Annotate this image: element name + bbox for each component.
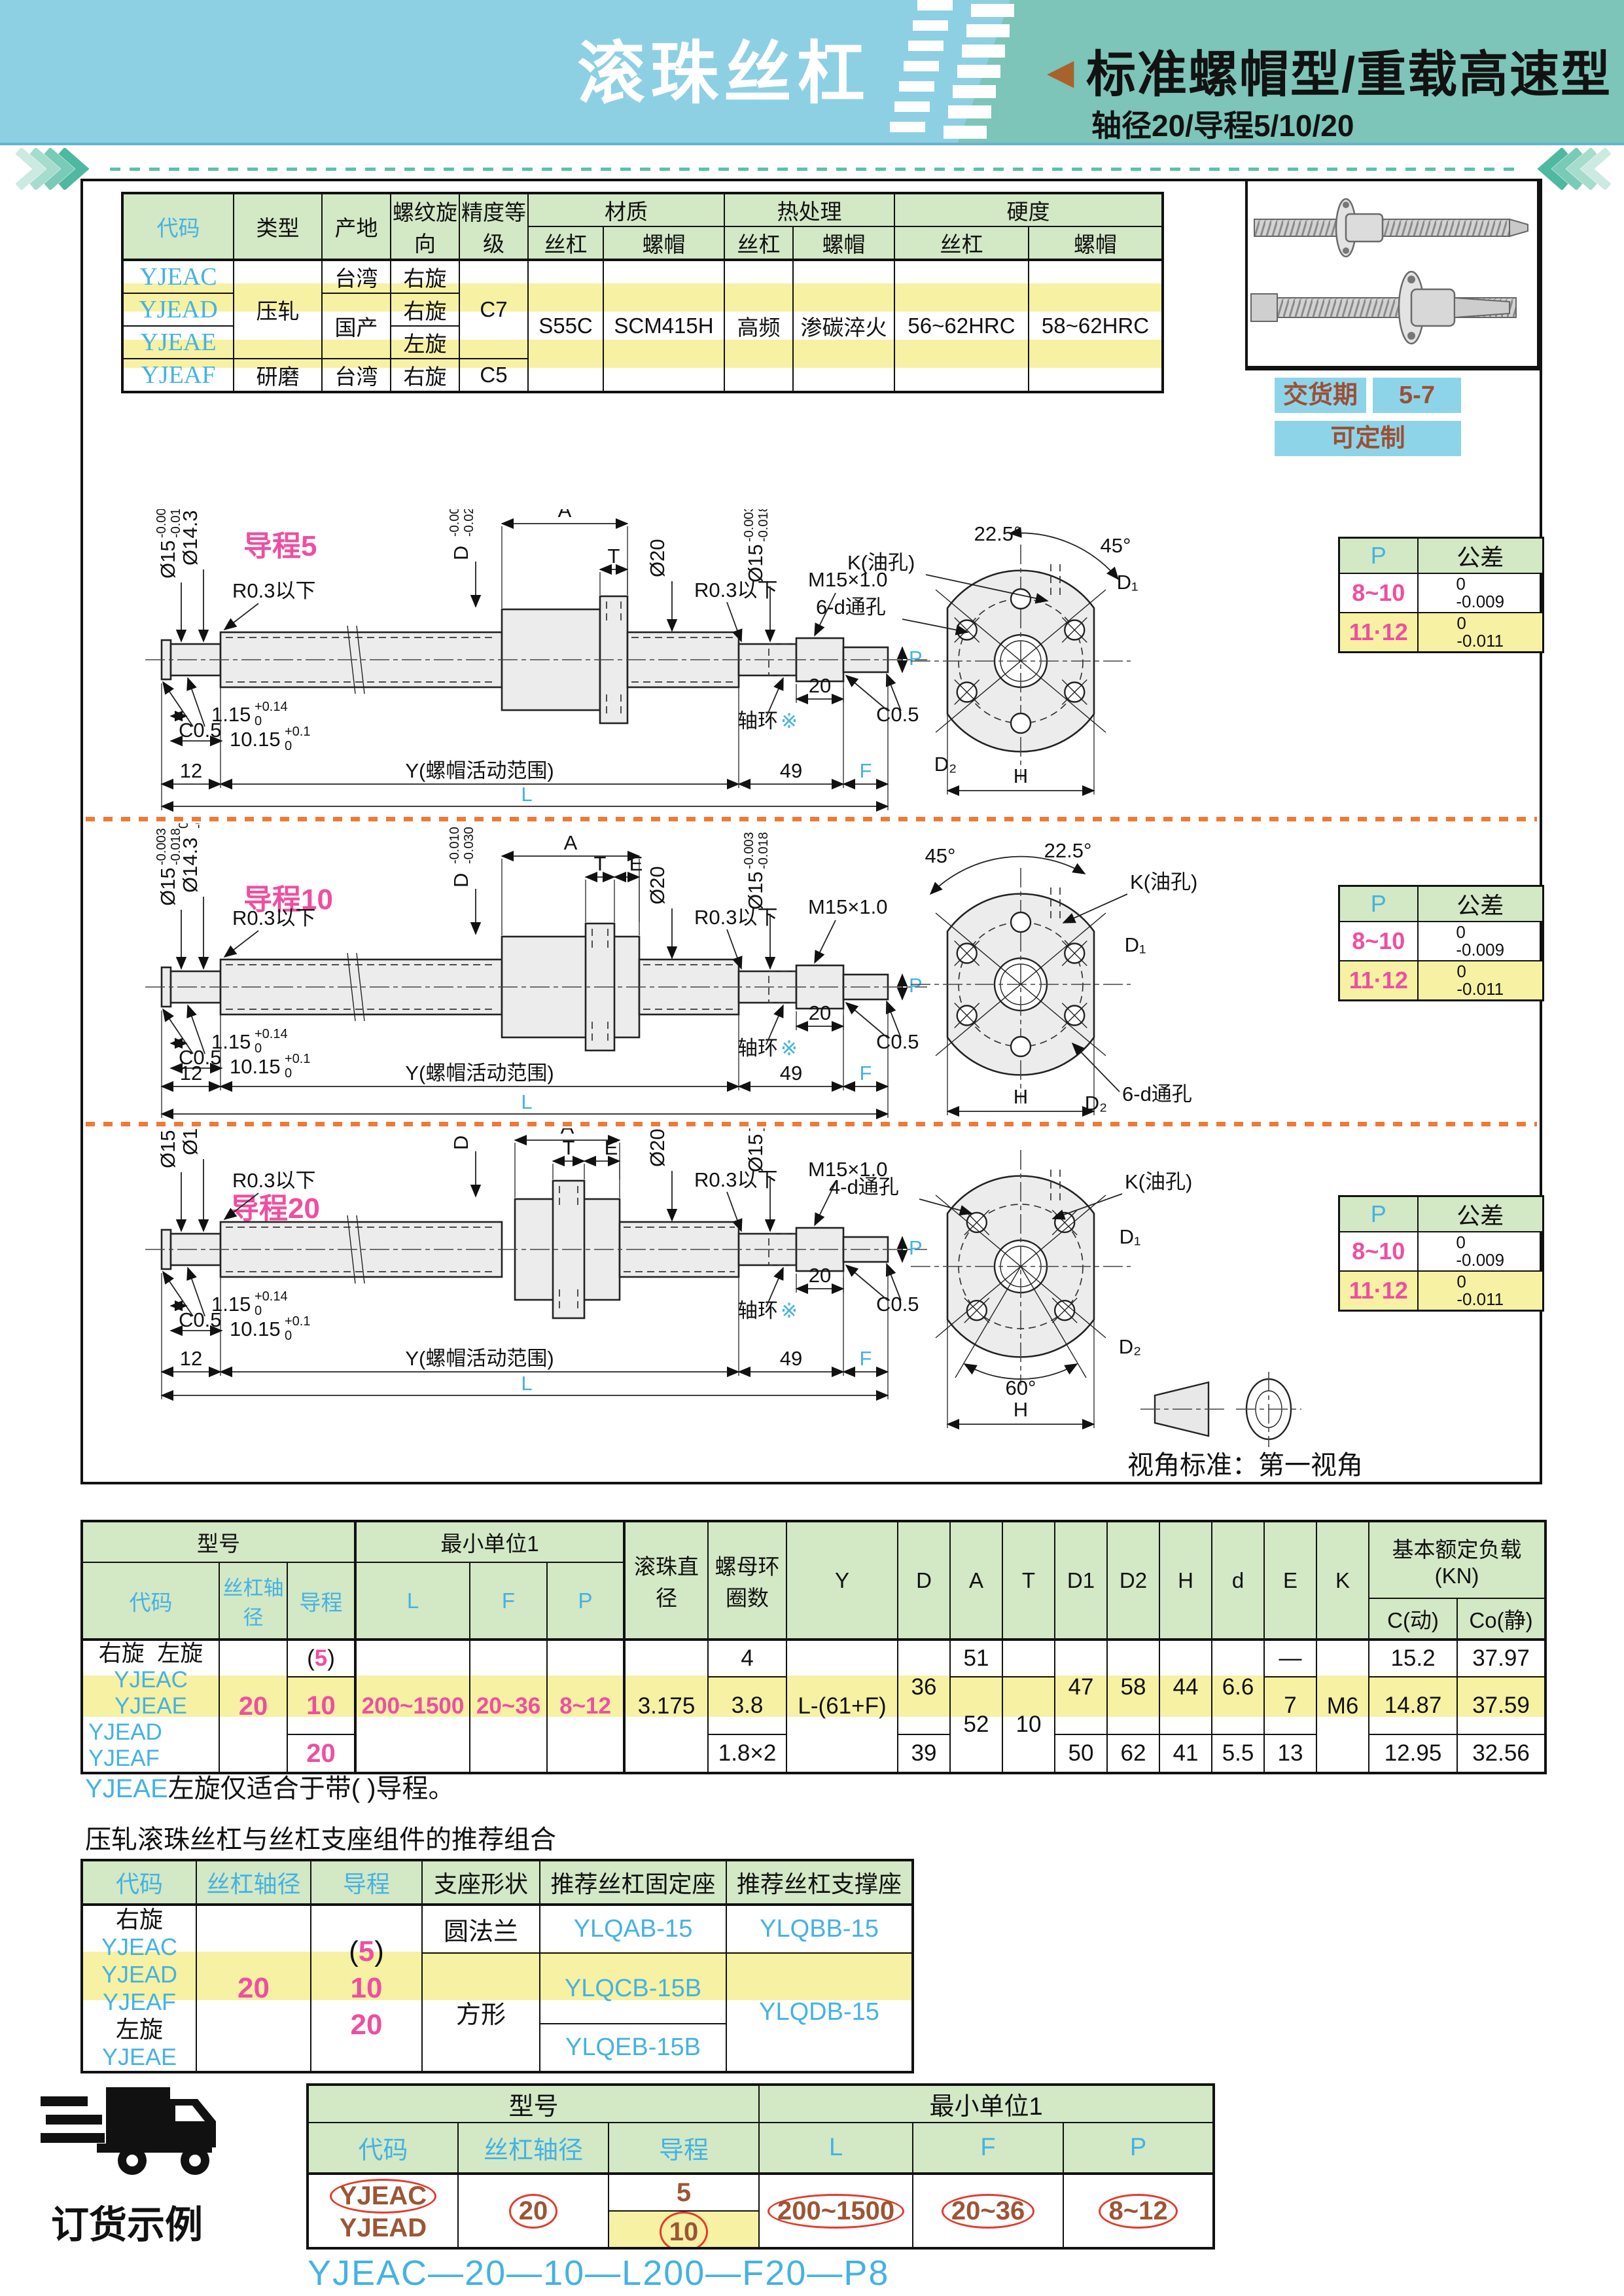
col-e: E: [1264, 1521, 1316, 1640]
len1015-lo-label: 0: [285, 739, 292, 753]
d1-label: D₁: [1120, 1225, 1141, 1248]
col-lead: 导程: [287, 1562, 355, 1640]
dia143-label: Ø14.3: [179, 838, 202, 893]
section-subtitle: 轴径20/导程5/10/20: [1091, 102, 1354, 145]
d2-3: 62: [1107, 1734, 1159, 1773]
len115-lo-label: 0: [255, 714, 262, 728]
leads-cell: (5) 10 20: [311, 1905, 422, 2072]
c-3: 12.95: [1369, 1734, 1457, 1773]
dia15-hi-label: -0.003: [742, 509, 756, 542]
dir-left: 左旋: [391, 326, 459, 359]
col-material: 材质: [528, 193, 724, 226]
order-codes: YJEAC YJEAD: [308, 2174, 458, 2248]
col-t: T: [1002, 1521, 1055, 1640]
c-2: 14.87: [1369, 1677, 1457, 1734]
col-heat: 热处理: [724, 193, 894, 226]
dim-h-label: H: [1014, 1398, 1028, 1421]
y-range-label: Y(螺帽活动范围): [405, 1347, 554, 1370]
len115-lo-label: 0: [255, 1041, 262, 1056]
r03-label: R0.3以下: [232, 579, 315, 602]
holes4-label: 4-d通孔: [829, 1175, 899, 1198]
dir-right: 右旋: [391, 359, 459, 392]
dia20-label: Ø20: [646, 1128, 669, 1167]
dim-t-label: T: [608, 545, 620, 567]
order-leads: 5 10: [609, 2174, 759, 2248]
len49-label: 49: [780, 1062, 802, 1085]
dim-l-label: L: [521, 1372, 532, 1395]
len115-label: 1.15: [211, 1030, 251, 1053]
group-min-unit: 最小单位1: [355, 1521, 624, 1562]
fixed-seat-1: YLQAB-15: [540, 1905, 726, 1953]
shaft-dia: 20: [196, 1905, 311, 2072]
recommend-table: 代码 丝杠轴径 导程 支座形状 推荐丝杠固定座 推荐丝杠支撑座 右旋 YJEAC…: [80, 1859, 914, 2073]
col-lead: 导程: [311, 1860, 422, 1905]
col-k: K: [1316, 1521, 1369, 1640]
col-ds: d: [1212, 1521, 1264, 1640]
col-shaft-dia: 丝杠轴径: [219, 1562, 287, 1640]
r03-label: R0.3以下: [232, 1169, 315, 1192]
group-model: 型号: [308, 2085, 759, 2123]
len1015-label: 10.15: [230, 1055, 281, 1078]
tol-col-p: P: [1339, 1196, 1418, 1232]
shape-square: 方形: [422, 1953, 540, 2072]
rings-3: 1.8×2: [708, 1734, 786, 1773]
c-1: 15.2: [1369, 1640, 1457, 1677]
codes-cell: 右旋 YJEAC YJEAD YJEAF 左旋 YJEAE: [82, 1905, 196, 2072]
rings-2: 3.8: [708, 1677, 786, 1734]
len1015-hi-label: +0.1: [285, 725, 310, 739]
tolerance-table-lead5: P 公差 8~10 0-0.009 11·12 0-0.011: [1338, 537, 1544, 653]
col-c-stat: Co(静): [1457, 1598, 1545, 1640]
dim-e-label: E: [605, 1136, 618, 1159]
lead-5: (5): [287, 1640, 355, 1677]
holes6-label: 6-d通孔: [816, 596, 886, 619]
col-origin: 产地: [322, 193, 391, 260]
truck-icon: [41, 2078, 224, 2189]
a-1: 51: [950, 1640, 1002, 1677]
dia143-hi-label: 0: [177, 823, 191, 829]
delivery-label: 交货期: [1275, 378, 1366, 413]
tolerance-table-lead10: P 公差 8~10 0-0.009 11·12 0-0.011: [1338, 885, 1544, 1001]
col-shaft-dia: 丝杠轴径: [196, 1860, 311, 1905]
tol-value-2: 0-0.011: [1418, 961, 1544, 1001]
d10-lo-label: -0.030: [462, 827, 476, 864]
ds-3: 5.5: [1212, 1734, 1264, 1773]
code-yjead: YJEAD: [122, 293, 234, 326]
len12-label: 12: [180, 759, 202, 782]
dia15-lo-label: -0.018: [756, 509, 771, 542]
t-23: 10: [1002, 1677, 1055, 1773]
col-screw: 丝杠: [724, 226, 793, 260]
co-1: 37.97: [1457, 1640, 1545, 1677]
d1-label: D₁: [1125, 933, 1146, 956]
support-seat-1: YLQBB-15: [726, 1905, 913, 1953]
len115-hi-label: +0.14: [255, 1027, 288, 1041]
col-p: P: [1063, 2123, 1214, 2174]
k-oil-label: K(油孔): [1130, 870, 1197, 893]
col-c-dyn: C(动): [1369, 1598, 1457, 1640]
header-zigzag-decoration: [872, 0, 1023, 143]
section-title: 标准螺帽型/重载高速型: [1086, 34, 1612, 106]
len115-label: 1.15: [211, 1293, 251, 1316]
col-screw: 丝杠: [528, 226, 603, 260]
len1015-label: 10.15: [230, 1318, 281, 1340]
recommend-table-wrap: 代码 丝杠轴径 导程 支座形状 推荐丝杠固定座 推荐丝杠支撑座 右旋 YJEAC…: [80, 1859, 911, 2049]
r03-label: R0.3以下: [232, 906, 315, 929]
d-label-label: D: [450, 1136, 472, 1150]
tol-range-1: 8~10: [1339, 573, 1418, 613]
dia15-lo-label: -0.018: [756, 1128, 771, 1132]
hardness-screw: 56~62HRC: [894, 260, 1029, 392]
col-code: 代码: [82, 1860, 196, 1905]
dim-p-label: P: [909, 974, 923, 997]
dia20-label: Ø20: [646, 539, 669, 577]
col-code: 代码: [308, 2123, 458, 2174]
tolerance-table-lead20: P 公差 8~10 0-0.009 11·12 0-0.011: [1338, 1195, 1544, 1312]
k-oil-label: K(油孔): [847, 551, 915, 574]
k-value: M6: [1316, 1640, 1369, 1773]
spec-table-wrap: 代码 类型 产地 螺纹旋向 精度等级 材质 热处理 硬度 丝杠 螺帽 丝杠 螺帽…: [121, 192, 1161, 368]
len1015-lo-label: 0: [285, 1329, 292, 1343]
main-table-wrap: 型号 最小单位1 滚珠直径 螺母环圈数 Y D A T D1 D2 H d E …: [80, 1520, 1544, 1757]
dia15-hi-label: -0.003: [154, 828, 169, 865]
col-rings: 螺母环圈数: [708, 1521, 786, 1640]
y-range-label: Y(螺帽活动范围): [405, 759, 554, 782]
d-3: 39: [898, 1734, 950, 1773]
shaft-dia: 20: [219, 1640, 287, 1773]
col-lead: 导程: [609, 2123, 759, 2174]
ball-dia: 3.175: [624, 1640, 708, 1773]
origin-domestic: 国产: [322, 293, 391, 359]
p-range: 8~12: [547, 1640, 624, 1773]
tol-value-2: 0-0.011: [1418, 1271, 1544, 1311]
group-load: 基本额定负载(KN): [1369, 1521, 1545, 1598]
d-label-label: D: [450, 546, 472, 560]
e-1: —: [1264, 1640, 1316, 1677]
len1015-hi-label: +0.1: [285, 1314, 310, 1329]
order-result: YJEAC—20—10—L200—F20—P8: [308, 2253, 889, 2293]
len115-lo-label: 0: [255, 1304, 262, 1318]
tol-value-2: 0-0.011: [1418, 613, 1544, 653]
dia15-hi-label: -0.003: [742, 1128, 756, 1132]
deg225-label: 22.5°: [1044, 839, 1092, 862]
len115-hi-label: +0.14: [255, 1289, 288, 1304]
divider-dashed-line: [110, 168, 1514, 171]
len115-hi-label: +0.14: [255, 700, 288, 714]
tol-col-p: P: [1339, 886, 1418, 922]
col-code: 代码: [82, 1562, 219, 1640]
fixed-seat-2: YLQCB-15B: [540, 1953, 726, 2024]
recommend-heading: 压轧滚珠丝杠与丝杠支座组件的推荐组合: [85, 1818, 556, 1856]
col-f: F: [470, 1562, 547, 1640]
delivery-value: 5-7: [1373, 378, 1461, 413]
tol-range-2: 11·12: [1339, 961, 1418, 1001]
page-title: 滚珠丝杠: [537, 25, 870, 123]
d1-3: 50: [1055, 1734, 1107, 1773]
col-fixed-seat: 推荐丝杠固定座: [540, 1860, 726, 1905]
dia15-label: Ø15: [156, 867, 179, 906]
len12-label: 12: [180, 1347, 202, 1370]
dim-e-label: E: [629, 852, 643, 875]
product-photo-box: [1245, 179, 1540, 370]
k-oil-label: K(油孔): [1125, 1170, 1192, 1193]
col-p: P: [547, 1562, 624, 1640]
rings-1: 4: [708, 1640, 786, 1677]
y-range-label: Y(螺帽活动范围): [405, 1062, 554, 1085]
col-thread-dir: 螺纹旋向: [391, 193, 459, 260]
ds-12: 6.6: [1212, 1640, 1264, 1734]
collar-label: 轴环: [737, 709, 778, 732]
tol-range-2: 11·12: [1339, 1271, 1418, 1311]
col-hardness: 硬度: [894, 193, 1163, 226]
co-3: 32.56: [1457, 1734, 1545, 1773]
section-arrow-icon: ◀: [1047, 51, 1074, 92]
lead20-drawing: ATED-0.010-0.038Ø15-0.003-0.018Ø14.30-0.…: [83, 1128, 1540, 1482]
d10-hi-label: -0.010: [448, 827, 462, 864]
len49-label: 49: [780, 759, 802, 782]
d2-label: D₂: [1119, 1335, 1141, 1358]
main-table: 型号 最小单位1 滚珠直径 螺母环圈数 Y D A T D1 D2 H d E …: [80, 1520, 1547, 1774]
tol-col-p: P: [1339, 538, 1418, 574]
len20-label: 20: [809, 1264, 831, 1287]
deg45-label: 45°: [925, 844, 956, 867]
dim-a-label: A: [564, 831, 578, 854]
ball-screw-photo: [1248, 181, 1532, 359]
col-l: L: [759, 2123, 913, 2174]
tol-col-tol: 公差: [1418, 1196, 1544, 1232]
len49-label: 49: [780, 1347, 802, 1370]
dia143-lo-label: -0.11: [191, 823, 205, 829]
col-precision: 精度等级: [459, 193, 528, 260]
d5-hi-label: -0.009: [448, 509, 462, 537]
dim-h-label: H: [1014, 764, 1028, 787]
lead-20: 20: [287, 1734, 355, 1773]
e-2: 7: [1264, 1677, 1316, 1734]
origin-taiwan: 台湾: [322, 260, 391, 293]
len20-label: 20: [809, 1001, 831, 1024]
col-shaft-dia: 丝杠轴径: [458, 2123, 609, 2174]
d1-label: D₁: [1117, 571, 1139, 594]
dim-h-label: H: [1014, 1085, 1028, 1108]
order-table: 型号 最小单位1 代码 丝杠轴径 导程 L F P YJEAC YJEAD 20…: [306, 2083, 1215, 2250]
order-example-label: 订货示例: [51, 2194, 203, 2249]
order-f: 20~36: [913, 2174, 1063, 2248]
group-min-unit: 最小单位1: [759, 2085, 1214, 2123]
dia15-label: Ø15: [744, 1134, 767, 1172]
col-l: L: [355, 1562, 470, 1640]
dia15-label: Ø15: [156, 540, 179, 579]
order-table-wrap: 型号 最小单位1 代码 丝杠轴径 导程 L F P YJEAC YJEAD 20…: [306, 2083, 1212, 2243]
tol-range-1: 8~10: [1339, 1232, 1418, 1271]
holes6-label: 6-d通孔: [1122, 1083, 1192, 1105]
col-d2: D2: [1107, 1521, 1159, 1640]
shape-round-flange: 圆法兰: [422, 1905, 540, 1953]
precision-c7: C7: [459, 260, 528, 359]
col-seat-shape: 支座形状: [422, 1860, 540, 1905]
a-23: 52: [950, 1677, 1002, 1773]
collar-mark-label: ※: [781, 709, 798, 732]
lead5-drawing: ATD-0.009-0.025Ø15-0.003-0.018Ø14.30-0.1…: [83, 509, 1540, 816]
collar-mark-label: ※: [781, 1299, 798, 1322]
col-code: 代码: [122, 193, 234, 260]
m15-label: M15×1.0: [808, 895, 888, 918]
dim-f-label: F: [860, 759, 872, 782]
col-d1: D1: [1055, 1521, 1107, 1640]
co-2: 37.59: [1457, 1677, 1545, 1734]
h-12: 44: [1159, 1640, 1212, 1734]
material-nut: SCM415H: [603, 260, 724, 392]
dia20-label: Ø20: [646, 866, 669, 905]
dim-t-label: T: [563, 1136, 575, 1159]
col-y: Y: [786, 1521, 898, 1640]
origin-taiwan: 台湾: [322, 359, 391, 392]
group-model: 型号: [82, 1521, 355, 1562]
dim-p-label: P: [909, 647, 923, 670]
order-p: 8~12: [1063, 2174, 1214, 2248]
spec-table: 代码 类型 产地 螺纹旋向 精度等级 材质 热处理 硬度 丝杠 螺帽 丝杠 螺帽…: [121, 192, 1164, 393]
collar-mark-label: ※: [781, 1037, 798, 1060]
dia15-lo-label: -0.018: [756, 832, 771, 869]
support-seat-23: YLQDB-15: [726, 1953, 913, 2072]
tol-value-1: 0-0.009: [1418, 922, 1544, 961]
fixed-seat-3: YLQEB-15B: [540, 2024, 726, 2072]
collar-label: 轴环: [737, 1037, 778, 1060]
d2-12: 58: [1107, 1640, 1159, 1734]
deg60-label: 60°: [1006, 1376, 1036, 1399]
dia15-label: Ø15: [744, 871, 767, 910]
l-range: 200~1500: [355, 1640, 470, 1773]
collar-label: 轴环: [737, 1299, 778, 1322]
dim-p-label: P: [909, 1236, 923, 1259]
dia143-label: Ø14.3: [179, 511, 202, 565]
t-1: [1002, 1640, 1055, 1677]
lead-10: 10: [287, 1677, 355, 1734]
hardness-nut: 58~62HRC: [1029, 260, 1163, 392]
deg45-label: 45°: [1101, 534, 1131, 557]
col-screw: 丝杠: [894, 226, 1029, 260]
len12-label: 12: [180, 1062, 202, 1085]
col-nut: 螺帽: [603, 226, 724, 260]
order-l: 200~1500: [759, 2174, 913, 2248]
code-yjeaf: YJEAF: [122, 359, 234, 392]
heat-screw: 高频: [724, 260, 793, 392]
code-yjeae: YJEAE: [122, 326, 234, 359]
len1015-label: 10.15: [230, 728, 281, 751]
dim-f-label: F: [860, 1062, 872, 1085]
e-3: 13: [1264, 1734, 1316, 1773]
drawing-separator: [86, 817, 1537, 821]
dia15-hi-label: -0.003: [742, 832, 756, 869]
customizable-label: 可定制: [1275, 421, 1461, 456]
dia143-label: Ø14.3: [179, 1128, 202, 1155]
len20-label: 20: [809, 674, 831, 697]
code-yjeac: YJEAC: [122, 260, 234, 293]
dim-l-label: L: [521, 783, 532, 806]
d-label-label: D: [450, 873, 472, 888]
col-nut: 螺帽: [1029, 226, 1163, 260]
type-ground: 研磨: [234, 359, 322, 392]
dia15-hi-label: -0.003: [154, 509, 169, 538]
dim-l-label: L: [521, 1090, 532, 1113]
tol-value-1: 0-0.009: [1418, 573, 1544, 613]
tol-value-1: 0-0.009: [1418, 1232, 1544, 1271]
order-shaft: 20: [458, 2174, 609, 2248]
d-12: 36: [898, 1640, 950, 1734]
col-nut: 螺帽: [793, 226, 894, 260]
drawing-separator: [86, 1122, 1537, 1126]
dia15-label: Ø15: [744, 544, 767, 583]
view-note-label: 视角标准：第一视角: [1127, 1451, 1363, 1480]
tol-col-tol: 公差: [1418, 538, 1544, 574]
dir-right: 右旋: [391, 260, 459, 293]
model-codes: 右旋 左旋 YJEAC YJEAE YJEAD YJEAF: [82, 1640, 219, 1773]
len1015-hi-label: +0.1: [285, 1052, 310, 1066]
col-support-seat: 推荐丝杠支撑座: [726, 1860, 913, 1905]
len115-label: 1.15: [211, 703, 251, 726]
dir-right: 右旋: [391, 293, 459, 326]
dim-a-label: A: [558, 509, 572, 522]
d2-label: D₂: [934, 753, 957, 776]
precision-c5: C5: [459, 359, 528, 392]
material-screw: S55C: [528, 260, 603, 392]
col-type: 类型: [234, 193, 322, 260]
y-formula: L-(61+F): [786, 1640, 898, 1773]
tol-range-1: 8~10: [1339, 922, 1418, 961]
d1-12: 47: [1055, 1640, 1107, 1734]
dim-f-label: F: [860, 1347, 872, 1370]
f-range: 20~36: [470, 1640, 547, 1773]
col-a: A: [950, 1521, 1002, 1640]
tol-range-2: 11·12: [1339, 613, 1418, 653]
len1015-lo-label: 0: [285, 1066, 292, 1081]
col-f: F: [913, 2123, 1063, 2174]
dim-t-label: T: [594, 852, 607, 875]
d5-lo-label: -0.025: [462, 509, 476, 537]
col-d: D: [898, 1521, 950, 1640]
col-h: H: [1159, 1521, 1212, 1640]
tol-col-tol: 公差: [1418, 886, 1544, 922]
heat-nut: 渗碳淬火: [793, 260, 894, 392]
col-ball-dia: 滚珠直径: [624, 1521, 708, 1640]
lead10-drawing: ATED-0.010-0.030Ø15-0.003-0.018Ø14.30-0.…: [83, 823, 1540, 1121]
h-3: 41: [1159, 1734, 1212, 1773]
dia15-label: Ø15: [156, 1130, 179, 1168]
deg225-label: 22.5°: [974, 522, 1022, 545]
type-rolled: 压轧: [234, 260, 322, 359]
